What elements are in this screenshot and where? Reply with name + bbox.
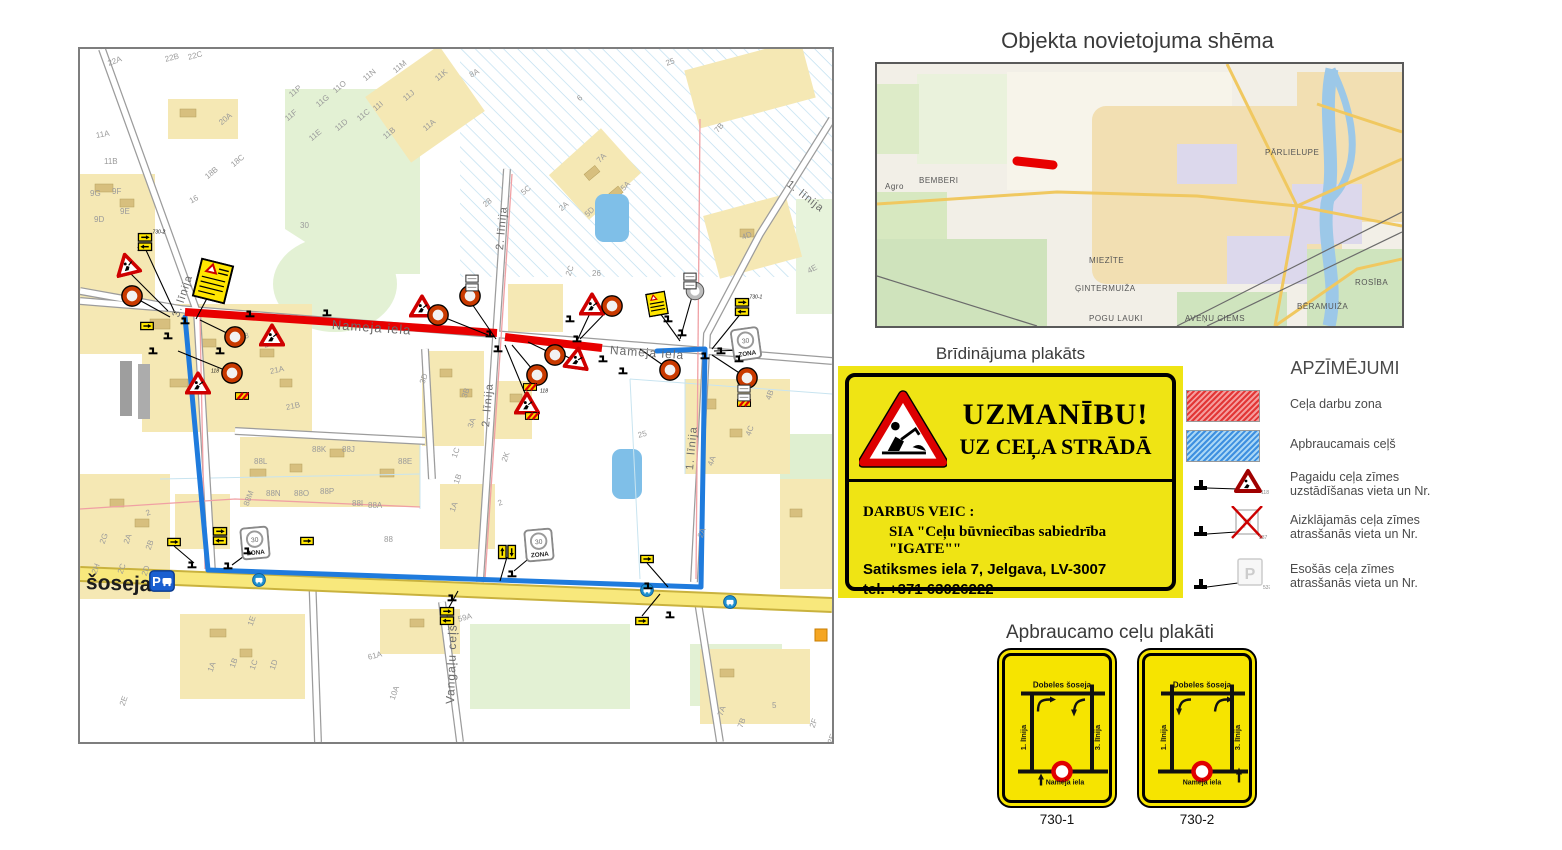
legend-existing-sign-line1: Esošās ceļa zīmes <box>1290 562 1418 576</box>
map-sign-pole <box>246 310 255 318</box>
map-sign-circle <box>427 304 449 326</box>
map-sign-stripe <box>523 383 538 391</box>
legend-existing-sign-label: Esošās ceļa zīmes atrasšanās vieta un Nr… <box>1290 562 1418 591</box>
plot-number-label: 9D <box>94 215 104 224</box>
map-sign-pole <box>566 315 575 323</box>
legend-temporary-sign-label: Pagaidu ceļa zīmes uzstādīšanas vieta un… <box>1290 470 1430 499</box>
svg-text:30: 30 <box>535 539 543 547</box>
legend-workzone-label: Ceļa darbu zona <box>1290 397 1382 411</box>
map-sign-circle <box>121 285 143 307</box>
map-sign-circle <box>544 344 566 366</box>
map-sign-stripe <box>525 412 540 420</box>
map-sign-circle <box>221 362 243 384</box>
svg-text:537: 537 <box>1263 585 1270 591</box>
detour-posters-title: Apbraucamo ceļu plakāti <box>960 622 1260 644</box>
legend-temporary-sign-line1: Pagaidu ceļa zīmes <box>1290 470 1430 484</box>
plot-number-label: 88N <box>266 489 281 498</box>
map-sign-pole <box>486 330 495 338</box>
map-sign-ysingle <box>140 322 155 331</box>
main-map: 22A22B22C11A11B9G9F9E9D20A18C18B163011P1… <box>78 47 834 744</box>
poster-contractor-phone: tel. +371 63026222 <box>863 581 1160 598</box>
map-sign-stripe <box>235 392 250 400</box>
map-sign-tri <box>563 345 592 371</box>
overview-background <box>877 64 1402 326</box>
poster-contractor-address: Satiksmes iela 7, Jelgava, LV-3007 <box>863 561 1160 578</box>
work-location-mark <box>1017 161 1053 165</box>
sign-number-label: 118 <box>211 370 219 375</box>
plot-number-label: 9G <box>90 189 101 198</box>
map-sign-pole <box>619 367 628 375</box>
sign-number-label: 730-1 <box>750 296 763 301</box>
map-sign-pole <box>735 355 744 363</box>
map-sign-ypair <box>440 607 455 626</box>
map-sign-pbus: P <box>149 570 175 592</box>
district-label: BĒRAMUIŽA <box>1297 302 1348 311</box>
map-sign-pole <box>181 317 190 325</box>
detour-poster-730-1-frame: Dobeles šoseja 1. līnija 3. līnija Namej… <box>1002 653 1112 803</box>
district-label: AVEŅU CIEMS <box>1185 314 1245 323</box>
warning-poster-frame: UZMANĪBU! UZ CEĻA STRĀDĀ DARBUS VEIC : S… <box>845 373 1176 591</box>
map-sign-pole <box>644 582 653 590</box>
plot-number-label: 88I <box>352 499 363 508</box>
district-label: Agro <box>885 182 904 191</box>
plot-number-label: 88P <box>320 487 334 496</box>
detour-poster-730-1-caption: 730-1 <box>997 812 1117 827</box>
map-sign-pole <box>494 345 503 353</box>
map-sign-pole <box>216 347 225 355</box>
plot-number-label: 88O <box>294 489 309 498</box>
map-sign-pole <box>717 347 726 355</box>
map-sign-pole <box>224 562 233 570</box>
legend-covered-sign-line1: Aizklājamās ceļa zīmes <box>1290 513 1420 527</box>
legend-existing-sign-line2: atrasšanās vieta un Nr. <box>1290 576 1418 590</box>
legend-workzone-swatch <box>1186 390 1260 422</box>
plot-number-label: 11B <box>104 157 118 166</box>
svg-text:118: 118 <box>1261 490 1269 496</box>
map-sign-zona30: 30ZONA <box>523 527 555 562</box>
warning-heading-line1: UZMANĪBU! <box>947 398 1164 432</box>
legend-existing-sign-icon: P 537 <box>1192 555 1270 595</box>
svg-text:537: 537 <box>1259 535 1268 541</box>
poster-contractor-name: SIA "Ceļu būvniecības sabiedrība "IGATE"… <box>863 524 1160 558</box>
map-sign-pole <box>701 352 710 360</box>
legend-title: APZĪMĒJUMI <box>1245 358 1445 379</box>
overview-map: BEMBERIPĀRLIELUPEMIEZĪTEĢINTERMUIŽAPOGU … <box>875 62 1404 328</box>
legend-temporary-sign-line2: uzstādīšanas vieta un Nr. <box>1290 484 1430 498</box>
legend-covered-sign-icon: P 537 <box>1192 506 1270 544</box>
map-sign-pole <box>678 329 687 337</box>
map-sign-wpair <box>465 274 479 292</box>
sign-number-label: 118 <box>540 390 548 395</box>
svg-text:30: 30 <box>251 537 259 545</box>
overview-title: Objekta novietojuma shēma <box>875 28 1400 54</box>
map-sign-ysingle <box>640 555 655 564</box>
map-sign-pole <box>573 335 582 343</box>
plot-number-label: 5 <box>772 701 776 710</box>
district-label: ĢINTERMUIŽA <box>1075 284 1136 293</box>
plot-number-label: 26 <box>592 269 601 278</box>
d1-top-street: Dobeles šoseja <box>1033 681 1092 690</box>
sign-number-label: 730-2 <box>153 231 166 236</box>
district-label: ROSĪBA <box>1355 278 1388 287</box>
map-sign-pole <box>599 355 608 363</box>
map-sign-bus <box>723 595 737 609</box>
detour-poster-730-2: Dobeles šoseja 1. līnija 3. līnija Namej… <box>1137 648 1257 808</box>
district-label: PĀRLIELUPE <box>1265 148 1319 157</box>
plot-number-label: 88A <box>368 501 382 510</box>
map-sign-minposter <box>645 290 669 317</box>
d2-left-street: 1. līnija <box>1159 724 1168 750</box>
leader-line <box>642 594 660 616</box>
d1-right-street: 3. līnija <box>1093 724 1102 750</box>
plot-number-label: 88J <box>342 445 355 454</box>
detour-poster-730-2-caption: 730-2 <box>1137 812 1257 827</box>
detour-poster-730-2-frame: Dobeles šoseja 1. līnija 3. līnija Namej… <box>1142 653 1252 803</box>
svg-text:P: P <box>152 574 161 589</box>
legend-detour-label: Apbraucamais ceļš <box>1290 437 1396 451</box>
legend-covered-sign-label: Aizklājamās ceļa zīmes atrasšanās vieta … <box>1290 513 1420 542</box>
poster-contractor-label: DARBUS VEIC : <box>863 504 1160 521</box>
map-sign-ysingle <box>167 538 182 547</box>
d1-left-street: 1. līnija <box>1019 724 1028 750</box>
traffic-scheme-page: 22A22B22C11A11B9G9F9E9D20A18C18B163011P1… <box>0 0 1562 850</box>
roadworks-triangle-icon <box>859 389 947 469</box>
legend-detour-swatch <box>1186 430 1260 462</box>
map-sign-ypair <box>498 545 517 560</box>
warning-poster-header: UZMANĪBU! UZ CEĻA STRĀDĀ <box>849 377 1172 482</box>
plot-number-label: 88L <box>254 457 267 466</box>
map-sign-bus <box>252 573 266 587</box>
map-sign-circle <box>659 359 681 381</box>
map-sign-pole <box>666 611 675 619</box>
plot-number-label: 88K <box>312 445 326 454</box>
svg-text:P: P <box>1245 566 1256 583</box>
warning-poster: UZMANĪBU! UZ CEĻA STRĀDĀ DARBUS VEIC : S… <box>838 366 1183 598</box>
district-label: MIEZĪTE <box>1089 256 1124 265</box>
legend-covered-sign-line2: atrasšanās vieta un Nr. <box>1290 527 1420 541</box>
map-sign-wpair <box>683 272 697 290</box>
plot-number-label: 88E <box>398 457 412 466</box>
warning-poster-title: Brīdinājuma plakāts <box>838 344 1183 364</box>
map-sign-pole <box>149 347 158 355</box>
street-name-label: Vangaļu ceļš <box>443 624 460 704</box>
warning-poster-heading: UZMANĪBU! UZ CEĻA STRĀDĀ <box>947 398 1164 460</box>
map-sign-ysingle <box>300 537 315 546</box>
plot-number-label: 30 <box>300 221 309 230</box>
map-sign-zona30: 30ZONA <box>239 525 271 560</box>
map-sign-pole <box>244 547 253 555</box>
detour-diagram-730-1: Dobeles šoseja 1. līnija 3. līnija Namej… <box>1005 656 1112 803</box>
map-sign-circle <box>224 326 246 348</box>
legend-temporary-sign-icon: 118 <box>1192 467 1270 497</box>
map-sign-ypair: 730-1 <box>735 298 750 317</box>
map-sign-ypair <box>213 527 228 546</box>
map-sign-ysingle <box>635 617 650 626</box>
plot-number-label: 9E <box>120 207 130 216</box>
map-sign-pole <box>448 594 457 602</box>
district-label: POGU LAUKI <box>1089 314 1143 323</box>
plot-number-label: 88 <box>384 535 393 544</box>
detour-poster-730-1: Dobeles šoseja 1. līnija 3. līnija Namej… <box>997 648 1117 808</box>
d2-top-street: Dobeles šoseja <box>1173 681 1232 690</box>
map-sign-wpair <box>737 384 751 402</box>
district-label: BEMBERI <box>919 176 959 185</box>
map-sign-tri <box>259 324 285 347</box>
d1-bottom-street: Nameja iela <box>1046 780 1085 787</box>
map-sign-circle <box>601 295 623 317</box>
warning-heading-line2: UZ CEĻA STRĀDĀ <box>947 434 1164 460</box>
map-sign-pole <box>164 332 173 340</box>
map-sign-ypair: 730-2 <box>138 233 153 252</box>
leader-line <box>500 557 507 581</box>
d2-bottom-street: Nameja iela <box>1183 780 1222 787</box>
plot-number-label: 9F <box>112 187 121 196</box>
map-sign-pole <box>508 570 517 578</box>
map-sign-pole <box>323 309 332 317</box>
d2-right-street: 3. līnija <box>1233 724 1242 750</box>
map-sign-pole <box>188 561 197 569</box>
svg-text:30: 30 <box>741 338 750 346</box>
map-sign-pole <box>664 315 673 323</box>
street-name-label: šoseja <box>86 571 152 597</box>
detour-diagram-730-2: Dobeles šoseja 1. līnija 3. līnija Namej… <box>1145 656 1252 803</box>
map-sign-tri: 118 <box>185 372 211 395</box>
warning-poster-body: DARBUS VEIC : SIA "Ceļu būvniecības sabi… <box>849 482 1172 601</box>
